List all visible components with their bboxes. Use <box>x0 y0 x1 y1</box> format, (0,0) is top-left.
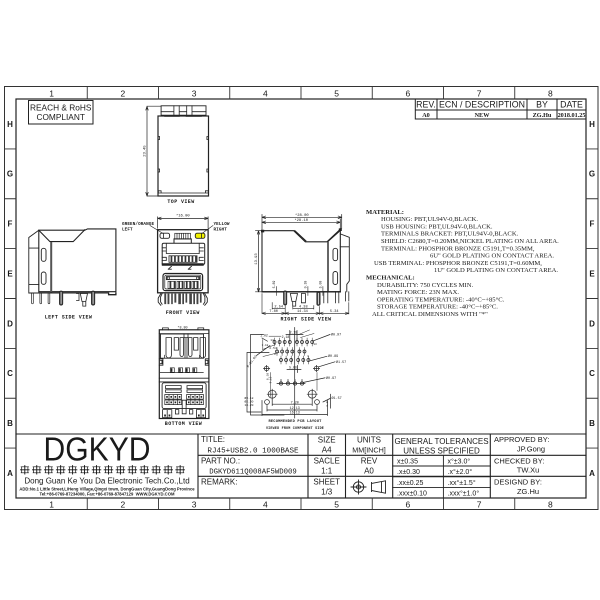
svg-text:LEFT SIDE VIEW: LEFT SIDE VIEW <box>45 315 93 321</box>
svg-text:Ø1.57: Ø1.57 <box>332 396 342 401</box>
svg-text:4.38: 4.38 <box>299 305 308 309</box>
svg-text:0.38: 0.38 <box>303 281 307 289</box>
svg-text:x±0.35: x±0.35 <box>397 459 418 466</box>
svg-text:NEW: NEW <box>475 112 491 119</box>
svg-text:5.89: 5.89 <box>272 281 276 289</box>
svg-text:3: 3 <box>192 500 197 510</box>
svg-text:1U" GOLD PLATING ON CONTACT AR: 1U" GOLD PLATING ON CONTACT AREA. <box>434 267 558 274</box>
svg-text:A0: A0 <box>422 112 430 119</box>
svg-text:E: E <box>7 269 13 278</box>
svg-text:13: 13 <box>313 343 317 346</box>
svg-text:MATING FORCE: 23N MAX.: MATING FORCE: 23N MAX. <box>377 289 459 296</box>
svg-text:REV.: REV. <box>416 100 436 110</box>
svg-text:*28.00: *28.00 <box>295 213 309 218</box>
svg-text:Ø0.97: Ø0.97 <box>331 333 341 338</box>
svg-text:D: D <box>589 319 595 328</box>
svg-text:SIZE: SIZE <box>318 436 336 445</box>
svg-text:3: 3 <box>192 89 197 99</box>
svg-text:TITLE:: TITLE: <box>201 435 225 444</box>
svg-text:Tel:+86-0769-87234000, Fax:+86: Tel:+86-0769-87234000, Fax:+86-0769-8784… <box>40 492 175 497</box>
svg-text:Dong Guan Ke You Da Electronic: Dong Guan Ke You Da Electronic Tech.Co.,… <box>24 477 189 486</box>
svg-text:C: C <box>7 369 13 378</box>
svg-text:4.0: 4.0 <box>325 401 329 407</box>
svg-text:7: 7 <box>477 89 482 99</box>
svg-text:5: 5 <box>334 89 339 99</box>
svg-text:ALL CRITICAL DIMENSIONS WITH ": ALL CRITICAL DIMENSIONS WITH "*" <box>372 311 488 318</box>
svg-text:3.18: 3.18 <box>262 344 269 347</box>
svg-text:JP.Gong: JP.Gong <box>517 445 545 454</box>
svg-text:TERMINAL: PHOSPHOR BRONZE C519: TERMINAL: PHOSPHOR BRONZE C5191,T=0.35MM… <box>381 245 535 252</box>
svg-text:2: 2 <box>121 89 126 99</box>
svg-text:.xx°±1.5°: .xx°±1.5° <box>448 479 476 487</box>
svg-text:12.13: 12.13 <box>290 407 300 411</box>
svg-text:RECOMMENDED PCB LAYOUT: RECOMMENDED PCB LAYOUT <box>268 420 322 424</box>
svg-text:A4: A4 <box>322 446 332 455</box>
svg-text:7.20: 7.20 <box>291 401 299 405</box>
svg-text:BOTTOM VIEW: BOTTOM VIEW <box>165 421 202 427</box>
svg-text:HOUSING: PBT,UL94V-0,BLACK.: HOUSING: PBT,UL94V-0,BLACK. <box>381 216 478 223</box>
svg-text:23.45: 23.45 <box>144 145 148 157</box>
svg-text:5: 5 <box>334 500 339 510</box>
svg-text:16.13: 16.13 <box>290 412 300 416</box>
svg-text:UNITS: UNITS <box>357 436 381 445</box>
svg-text:.x±0.30: .x±0.30 <box>397 469 420 476</box>
svg-text:VIEWED FROM COMPONENT SIDE: VIEWED FROM COMPONENT SIDE <box>266 427 324 431</box>
svg-text:14: 14 <box>270 339 274 342</box>
svg-text:SHIELD: C2680,T=0.20MM,NICKEL: SHIELD: C2680,T=0.20MM,NICKEL PLATING ON… <box>381 238 559 245</box>
svg-text:5.34: 5.34 <box>330 310 339 314</box>
svg-text:.x°±2.0°: .x°±2.0° <box>448 468 473 476</box>
svg-text:6U" GOLD PLATING ON CONTACT AR: 6U" GOLD PLATING ON CONTACT AREA. <box>430 253 554 260</box>
svg-text:D: D <box>7 319 13 328</box>
svg-text:DATE: DATE <box>560 100 583 110</box>
svg-text:4: 4 <box>263 500 268 510</box>
svg-text:10.20: 10.20 <box>244 404 253 407</box>
svg-text:USB TERMINAL: PHOSPHOR BRONZE: USB TERMINAL: PHOSPHOR BRONZE C5191,T=0.… <box>374 260 542 267</box>
svg-text:LEFT: LEFT <box>122 227 133 232</box>
svg-text:SHEET: SHEET <box>313 478 340 487</box>
svg-text:DGKYD: DGKYD <box>44 431 151 468</box>
svg-text:*28.10: *28.10 <box>294 218 308 223</box>
svg-text:9.10: 9.10 <box>270 376 273 383</box>
svg-text:USB HOUSING: PBT,UL94V-0,BLACK: USB HOUSING: PBT,UL94V-0,BLACK. <box>381 223 493 230</box>
svg-text:REV: REV <box>361 457 378 466</box>
svg-text:1/3: 1/3 <box>321 488 333 497</box>
svg-text:B: B <box>7 419 13 428</box>
svg-text:CHECKED BY:: CHECKED BY: <box>494 457 544 466</box>
svg-text:13.93: 13.93 <box>255 253 259 265</box>
svg-text:14.34: 14.34 <box>297 310 308 314</box>
svg-text:MECHANICAL:: MECHANICAL: <box>366 275 415 282</box>
svg-text:MM[INCH]: MM[INCH] <box>352 446 386 455</box>
svg-text:7.80: 7.80 <box>269 310 278 314</box>
svg-text:SACLE: SACLE <box>314 457 340 466</box>
svg-text:PART NO.:: PART NO.: <box>201 457 240 466</box>
svg-text:8: 8 <box>548 89 553 99</box>
svg-text:RIGHT SIDE VIEW: RIGHT SIDE VIEW <box>280 317 331 323</box>
svg-text:F: F <box>8 220 13 229</box>
svg-text:4: 4 <box>263 89 268 99</box>
svg-text:H: H <box>7 120 13 129</box>
svg-text:MATERIAL:: MATERIAL: <box>366 209 404 216</box>
svg-text:REMARK:: REMARK: <box>201 478 237 487</box>
svg-text:C: C <box>589 369 595 378</box>
svg-text:.xxx±0.10: .xxx±0.10 <box>397 490 427 497</box>
svg-text:.xx±0.25: .xx±0.25 <box>397 480 424 487</box>
svg-text:GENERAL TOLERANCES: GENERAL TOLERANCES <box>394 437 488 446</box>
svg-text:1.02: 1.02 <box>260 334 268 338</box>
svg-text:TW.Xu: TW.Xu <box>517 466 540 475</box>
svg-text:Ø0.89: Ø0.89 <box>328 354 338 359</box>
svg-text:TOP VIEW: TOP VIEW <box>167 199 194 205</box>
svg-text:2018.01.25: 2018.01.25 <box>558 112 586 119</box>
svg-text:REACH & RoHS: REACH & RoHS <box>30 102 92 112</box>
svg-text:TERMINALS BRACKET: PBT,UL94V-0: TERMINALS BRACKET: PBT,UL94V-0,BLACK. <box>381 231 519 238</box>
svg-text:1: 1 <box>49 89 54 99</box>
svg-text:2.18: 2.18 <box>282 335 290 339</box>
svg-text:6: 6 <box>406 500 411 510</box>
svg-text:RIGHT: RIGHT <box>214 227 228 232</box>
svg-text:A0: A0 <box>364 467 374 476</box>
svg-text:ECN / DESCRIPTION: ECN / DESCRIPTION <box>439 100 525 110</box>
svg-text:ZG.Hu: ZG.Hu <box>517 487 539 496</box>
svg-text:APPROVED BY:: APPROVED BY: <box>494 435 549 444</box>
svg-text:6: 6 <box>406 89 411 99</box>
svg-text:G: G <box>589 170 595 179</box>
svg-text:5.08: 5.08 <box>318 281 322 289</box>
svg-text:UNLESS SPECIFIED: UNLESS SPECIFIED <box>403 447 480 456</box>
svg-text:1: 1 <box>49 500 54 510</box>
svg-text:COMPLIANT: COMPLIANT <box>36 112 84 122</box>
svg-text:BY: BY <box>536 100 548 110</box>
svg-text:*16.00: *16.00 <box>176 214 190 219</box>
svg-text:Ø1.57: Ø1.57 <box>336 360 346 365</box>
svg-text:Ø3.18: Ø3.18 <box>244 396 253 400</box>
svg-text:Ø2.30: Ø2.30 <box>244 400 253 404</box>
svg-text:1:1: 1:1 <box>321 467 333 476</box>
svg-text:G: G <box>7 170 13 179</box>
svg-text:A: A <box>589 469 595 478</box>
svg-text:RJ45+USB2.0 1000BASE: RJ45+USB2.0 1000BASE <box>207 448 299 456</box>
svg-text:2: 2 <box>121 500 126 510</box>
svg-text:OPERATING TEMPERATURE: -40°C~+: OPERATING TEMPERATURE: -40°C~+85°C. <box>377 296 505 303</box>
svg-text:DGKYD611Q008AF5WD009: DGKYD611Q008AF5WD009 <box>209 469 297 477</box>
svg-text:STORAGE TEMPERATURE: -40°C~+85: STORAGE TEMPERATURE: -40°C~+85°C. <box>377 304 498 311</box>
svg-text:8: 8 <box>548 500 553 510</box>
svg-text:ZG.Hu: ZG.Hu <box>533 112 552 119</box>
svg-text:F: F <box>590 220 595 229</box>
svg-text:DURABILITY: 750 CYCLES MIN.: DURABILITY: 750 CYCLES MIN. <box>377 282 473 289</box>
svg-text:2.19: 2.19 <box>290 331 298 335</box>
svg-text:DESIGND BY:: DESIGND BY: <box>494 478 542 487</box>
svg-text:.xxx°±1.0°: .xxx°±1.0° <box>448 489 480 497</box>
svg-text:A: A <box>7 469 13 478</box>
svg-text:x°±3.0°: x°±3.0° <box>448 458 471 466</box>
svg-text:B: B <box>589 419 595 428</box>
svg-text:Ø0.97: Ø0.97 <box>326 376 336 381</box>
svg-text:5.08: 5.08 <box>289 366 297 370</box>
svg-text:E: E <box>589 269 595 278</box>
svg-text:7: 7 <box>477 500 482 510</box>
svg-text:2.54: 2.54 <box>274 305 283 309</box>
svg-text:FRONT VIEW: FRONT VIEW <box>166 310 200 316</box>
svg-text:H: H <box>589 120 595 129</box>
